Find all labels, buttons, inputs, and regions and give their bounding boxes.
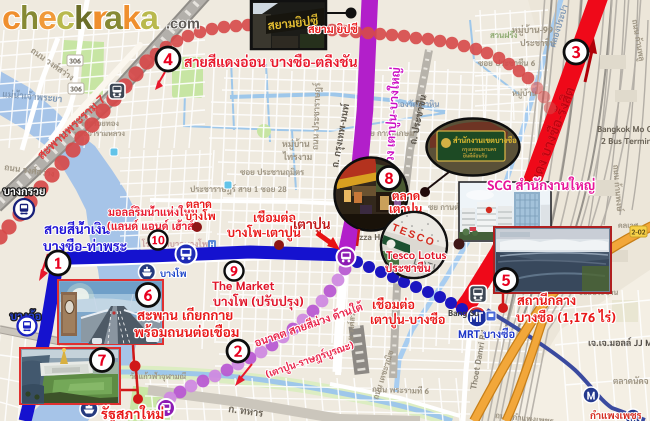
svg-text:k: k [122, 0, 142, 36]
svg-text:.com: .com [166, 17, 200, 33]
svg-text:c: c [2, 0, 21, 36]
svg-text:e: e [38, 0, 57, 36]
svg-text:c: c [56, 0, 75, 36]
svg-text:a: a [104, 0, 124, 36]
svg-text:h: h [20, 0, 39, 36]
svg-text:a: a [140, 0, 160, 36]
